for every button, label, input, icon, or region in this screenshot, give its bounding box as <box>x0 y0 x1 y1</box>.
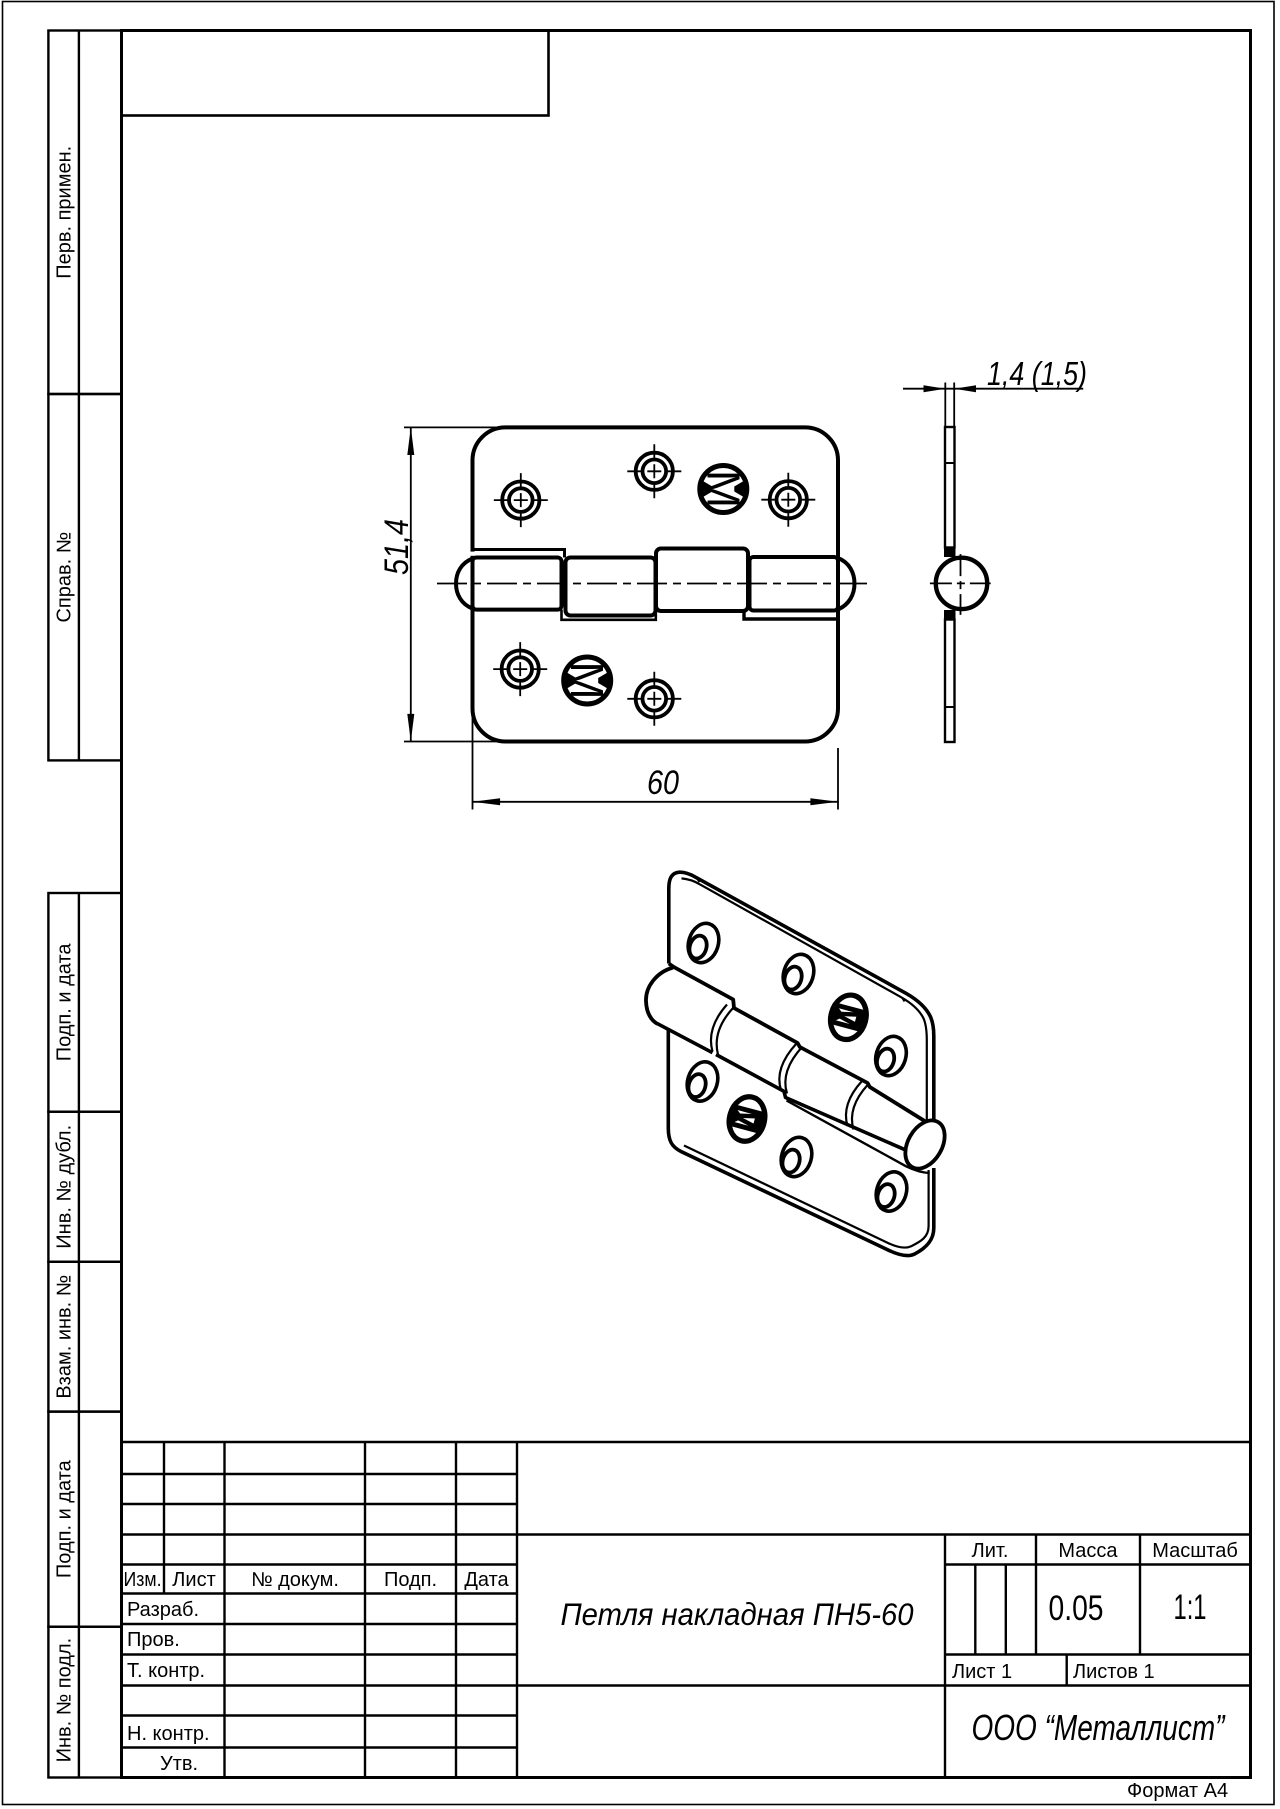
svg-text:Н. контр.: Н. контр. <box>127 1723 210 1745</box>
svg-text:Справ. №: Справ. № <box>54 532 76 623</box>
svg-text:Петля накладная ПН5-60: Петля накладная ПН5-60 <box>561 1596 914 1632</box>
svg-text:1:1: 1:1 <box>1174 1588 1207 1627</box>
svg-text:Лист: Лист <box>172 1569 215 1591</box>
svg-text:Формат А4: Формат А4 <box>1127 1780 1228 1802</box>
svg-text:51,4: 51,4 <box>378 519 416 575</box>
svg-text:Подп. и дата: Подп. и дата <box>54 1459 76 1578</box>
svg-text:Утв.: Утв. <box>160 1753 198 1775</box>
svg-text:№ докум.: № докум. <box>251 1569 339 1591</box>
svg-text:Инв. № подл.: Инв. № подл. <box>54 1638 76 1763</box>
svg-text:Дата: Дата <box>464 1569 509 1591</box>
svg-text:Подп. и дата: Подп. и дата <box>54 943 76 1062</box>
svg-text:0.05: 0.05 <box>1049 1589 1104 1628</box>
svg-text:Т. контр.: Т. контр. <box>127 1660 205 1682</box>
svg-text:Пров.: Пров. <box>127 1629 180 1651</box>
svg-text:Лист 1: Лист 1 <box>952 1661 1012 1683</box>
svg-text:Взам. инв. №: Взам. инв. № <box>54 1275 76 1399</box>
svg-text:Листов 1: Листов 1 <box>1073 1661 1155 1683</box>
svg-text:Разраб.: Разраб. <box>127 1599 199 1621</box>
svg-text:60: 60 <box>647 764 679 802</box>
svg-text:Подп.: Подп. <box>384 1569 437 1591</box>
svg-text:Изм.: Изм. <box>124 1569 162 1591</box>
svg-text:Инв. № дубл.: Инв. № дубл. <box>54 1125 76 1249</box>
svg-text:Масса: Масса <box>1058 1540 1118 1562</box>
svg-text:Лит.: Лит. <box>972 1540 1009 1562</box>
svg-text:1,4 (1,5): 1,4 (1,5) <box>987 355 1087 392</box>
svg-text:Перв. примен.: Перв. примен. <box>54 146 76 279</box>
svg-text:Масштаб: Масштаб <box>1152 1540 1238 1562</box>
svg-text:ООО “Металлист”: ООО “Металлист” <box>972 1707 1227 1748</box>
